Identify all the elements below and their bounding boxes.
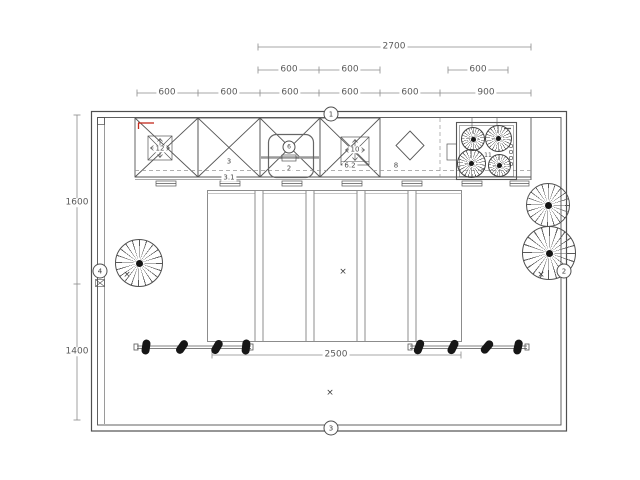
valve-symbol [96,280,105,287]
cross-marker-icon: × [537,270,545,280]
door-handles [156,181,529,186]
base-cabinet-2 [198,118,260,177]
table-joint-3 [357,191,365,342]
centre-table [208,191,462,342]
burner-icon [457,149,486,178]
dim-label: 600 [218,88,239,97]
spot-box-10-label: 10 [349,146,362,153]
ceiling-light-icon [526,183,570,227]
dim-label: 2500 [323,350,350,359]
dim-label: 900 [475,88,496,97]
table-joint-4 [408,191,416,342]
wall-marker-4: 4 [93,264,108,279]
burner-icon [488,154,511,177]
cabinet-label: 3 [225,158,233,165]
dim-label: 1600 [64,198,91,207]
cross-marker-icon: × [326,388,334,398]
dim-label: 600 [399,88,420,97]
cooktop-side-box [447,144,457,160]
dimension-lines [74,44,532,421]
base-cabinet-1 [135,118,198,177]
table-joint-1 [255,191,263,342]
burner-icon [461,127,485,151]
track-right [408,344,529,350]
dim-label: 2700 [381,42,408,51]
cross-marker-icon: × [339,267,347,277]
table-joint-2 [306,191,314,342]
wall-marker-1: 1 [324,107,339,122]
cross-marker-icon: × [123,270,131,280]
ceiling-light-icon [115,239,163,287]
dim-label: 600 [279,88,300,97]
dim-label: 600 [156,88,177,97]
track-left [134,344,253,350]
dim-label: 600 [339,88,360,97]
dim-label: 1400 [64,347,91,356]
cabinet-sub-label: 3.1 [221,174,236,181]
sink-marker-circle: 6 [283,141,296,154]
table-top [208,191,462,342]
wall-marker-3: 3 [324,421,339,436]
spot-box-12-label: 12 [154,145,167,152]
wall-marker-2: 2 [557,264,572,279]
dim-label: 600 [278,65,299,74]
floorplan-page: 2700 600 600 600 600 600 600 600 600 900… [0,0,640,480]
dim-top-row3 [137,90,531,97]
dim-label: 600 [339,65,360,74]
dim-left-column [74,115,81,420]
corner-column [98,118,105,125]
corner-cabinet-label: 8 [392,162,400,169]
dim-label: 600 [467,65,488,74]
sink-number: 2 [285,165,293,172]
burner-icon [485,125,512,152]
spot-box-10-sub-label: 6.2 [342,162,357,169]
corner-carousel-diamond [396,131,424,160]
